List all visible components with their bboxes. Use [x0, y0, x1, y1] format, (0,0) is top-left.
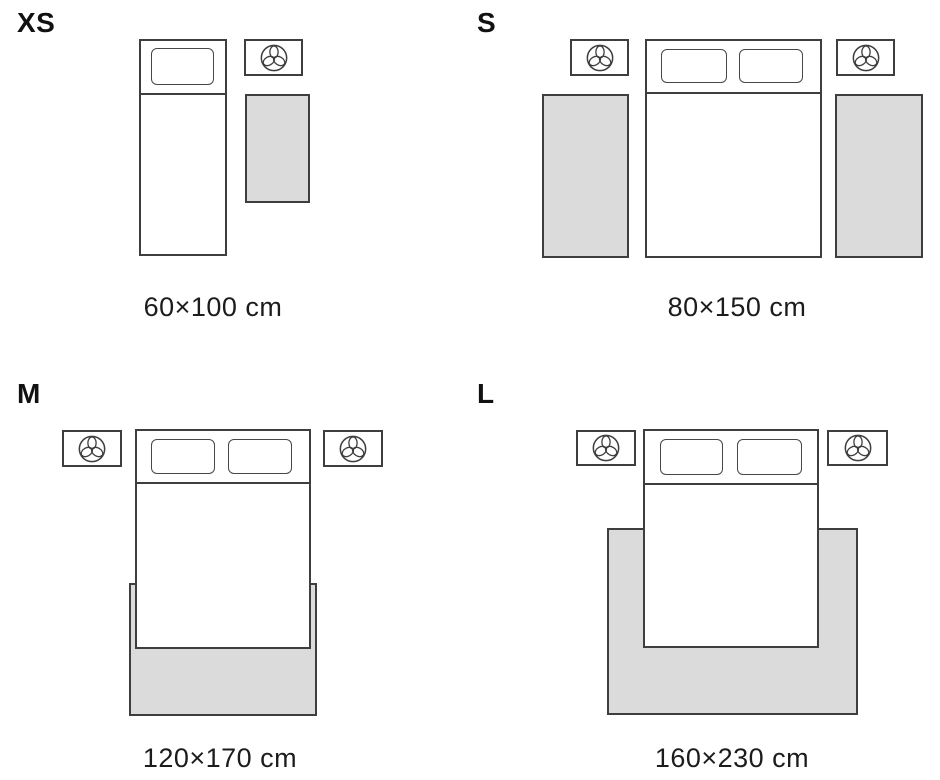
rug-xs	[245, 94, 310, 203]
bed-headboard	[141, 41, 225, 95]
pillow	[737, 439, 802, 475]
size-label-l: L	[477, 380, 495, 408]
pillow	[661, 49, 727, 83]
rug-size-guide-canvas: XS 60×100 cm S	[0, 0, 940, 780]
bed-headboard	[645, 431, 817, 485]
bed-single-xs	[139, 39, 227, 256]
nightstand	[576, 430, 636, 466]
pillow	[739, 49, 803, 83]
pillow	[151, 48, 214, 85]
size-caption-l: 160×230 cm	[632, 745, 832, 772]
bed-headboard	[647, 41, 820, 94]
pillow	[660, 439, 723, 475]
bed-double-s	[645, 39, 822, 258]
bed-double-l	[643, 429, 819, 648]
bed-double-m	[135, 429, 311, 649]
plant-icon	[591, 433, 621, 463]
bed-headboard	[137, 431, 309, 484]
nightstand	[827, 430, 888, 466]
pillow	[151, 439, 215, 474]
rug-s-left	[542, 94, 629, 258]
pillow	[228, 439, 292, 474]
plant-icon	[843, 433, 873, 463]
rug-s-right	[835, 94, 923, 258]
